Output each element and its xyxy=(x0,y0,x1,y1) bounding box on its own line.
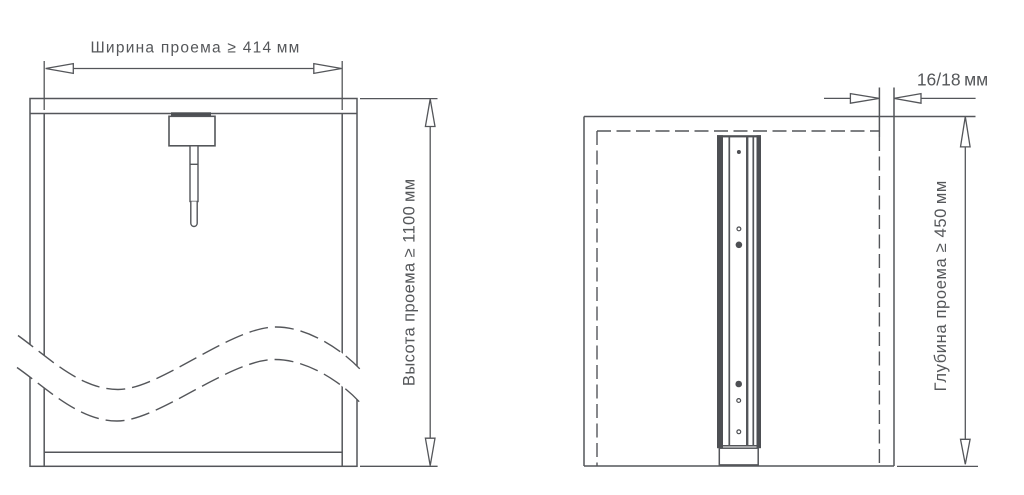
svg-text:Глубина проема ≥ 450 мм: Глубина проема ≥ 450 мм xyxy=(931,180,950,391)
svg-text:16/18 мм: 16/18 мм xyxy=(917,70,988,90)
svg-text:Ширина проема ≥ 414 мм: Ширина проема ≥ 414 мм xyxy=(90,39,300,56)
svg-text:Высота проема ≥ 1100 мм: Высота проема ≥ 1100 мм xyxy=(400,179,418,387)
